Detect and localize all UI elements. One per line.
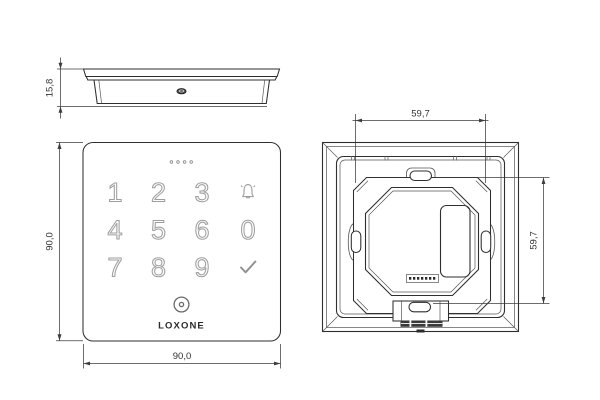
dimension-label-front-width: 90,0	[173, 351, 192, 362]
side-top-plate	[84, 69, 280, 77]
arrowhead	[274, 362, 281, 366]
arrowhead	[542, 297, 546, 304]
side-view: 15,8	[45, 58, 280, 119]
keypad-key-1: 1	[107, 178, 122, 208]
connector-pin	[425, 277, 427, 280]
keypad-key-4: 4	[107, 215, 122, 245]
connector-pin	[421, 277, 423, 280]
arrowhead	[356, 119, 363, 123]
technical-drawing-canvas: 15,8 1 2 3 4 5 6 7 8 9 0	[0, 0, 600, 400]
connector-pin	[417, 277, 419, 280]
arrowhead	[59, 63, 63, 69]
dimension-front-height: 90,0	[45, 143, 84, 341]
keypad-key-6: 6	[194, 215, 209, 245]
dimension-label-hole-spacing-v: 59,7	[529, 231, 540, 250]
arrowhead	[58, 334, 62, 341]
front-view: 1 2 3 4 5 6 7 8 9 0 LOXONE	[45, 143, 281, 369]
label-strip	[401, 321, 443, 327]
arrowhead	[59, 107, 63, 113]
keypad-key-2: 2	[151, 178, 166, 208]
connector-pin	[433, 277, 435, 280]
keypad-key-5: 5	[151, 215, 166, 245]
side-connector-slot	[177, 89, 186, 94]
dimension-front-width: 90,0	[84, 344, 281, 369]
connector-pin	[429, 277, 431, 280]
back-view: 59,7 59,7	[323, 109, 550, 333]
keypad-key-9: 9	[194, 253, 209, 283]
drawing-svg: 15,8 1 2 3 4 5 6 7 8 9 0	[0, 0, 600, 400]
keypad-key-8: 8	[151, 253, 166, 283]
connector-pin	[413, 277, 415, 280]
mount-hole-left	[351, 231, 361, 253]
arrowhead	[58, 143, 62, 150]
mount-hole-bottom	[409, 302, 431, 312]
dimension-label-front-height: 90,0	[45, 232, 56, 251]
bottom-notch	[417, 330, 425, 333]
mount-hole-right	[481, 231, 491, 253]
dimension-label-hole-spacing-h: 59,7	[411, 109, 430, 120]
arrowhead	[542, 178, 546, 185]
keypad-key-3: 3	[194, 178, 209, 208]
arrowhead	[84, 362, 91, 366]
keypad-key-7: 7	[107, 253, 122, 283]
brand-logo: LOXONE	[158, 321, 205, 332]
keypad-key-0: 0	[240, 215, 255, 245]
dimension-label-thickness: 15,8	[45, 79, 56, 98]
arrowhead	[479, 119, 486, 123]
mount-hole-top	[410, 171, 432, 181]
connector-pin	[409, 277, 411, 280]
